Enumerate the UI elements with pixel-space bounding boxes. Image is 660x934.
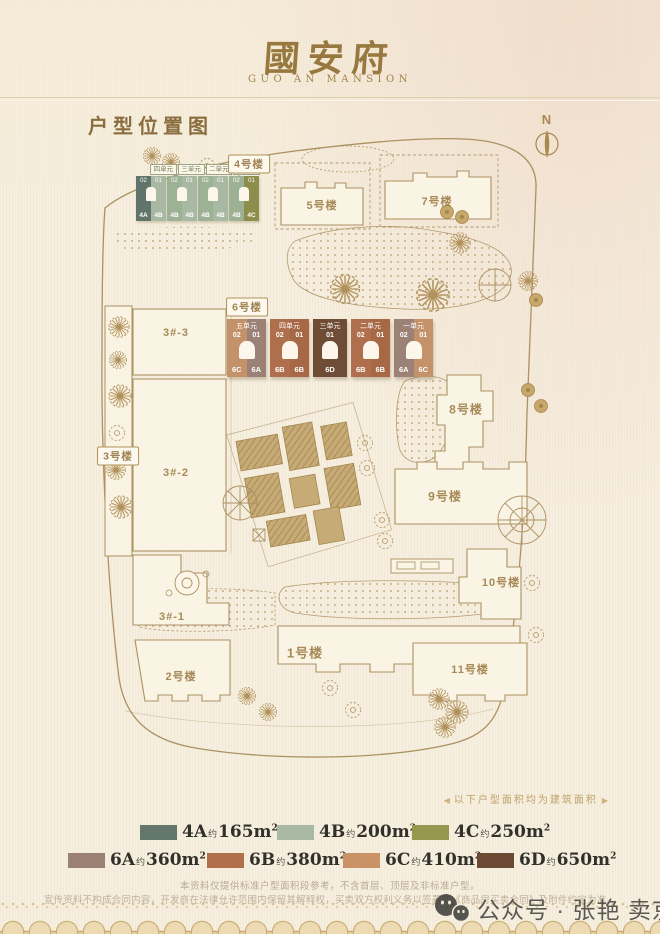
legend-item-6A: 6A约360m2 — [68, 850, 206, 870]
unit-type: 6B — [351, 365, 371, 374]
legend-approx: 约 — [480, 830, 489, 840]
unit-no: 01 — [182, 178, 197, 184]
entrance — [177, 187, 187, 201]
legend-area: 200m — [356, 822, 409, 842]
entrance — [322, 341, 338, 359]
building-4-cells: 02 4A 01 4B 02 4B 01 — [136, 176, 260, 221]
entrance — [208, 187, 218, 201]
legend-code: 6B — [249, 850, 275, 870]
legend-swatch-4B — [277, 825, 314, 840]
legend-code: 6A — [110, 850, 135, 870]
unit-type: 6C — [227, 365, 247, 374]
legend-sup: 2 — [544, 823, 550, 833]
legend-item-6C: 6C约410m2 — [343, 850, 481, 870]
building-label-7: 7号楼 — [421, 193, 452, 209]
unit-type: 4A — [136, 212, 151, 219]
wechat-icon — [433, 892, 471, 924]
legend-swatch-6D — [477, 853, 514, 868]
building-6-units-block: 五单元 02 6C 01 6A 四单元 02 6B 01 — [227, 319, 433, 377]
disclaimer-line-1: 本资料仅提供标准户型面积段参考，不含首层、顶层及非标准户型。 — [0, 878, 660, 892]
legend-approx: 约 — [136, 858, 145, 868]
building-label-8: 8号楼 — [449, 401, 483, 418]
watermark-text: 公众号 · 张艳 卖京房 — [477, 891, 660, 925]
unit-no: 01 — [414, 332, 434, 339]
unit-type: 6D — [313, 365, 347, 374]
unit-no: 02 — [227, 332, 247, 339]
unit-type: 6B — [270, 365, 290, 374]
unit-type: 4B — [198, 212, 213, 219]
unit-no: 01 — [247, 332, 267, 339]
legend-area: 410m — [421, 850, 474, 870]
entrance — [282, 341, 298, 359]
unit-no: 01 — [213, 178, 228, 184]
building-label-10: 10号楼 — [482, 574, 520, 590]
legend-item-6B: 6B约380m2 — [207, 850, 346, 870]
building-label-6: 6号楼 — [226, 298, 268, 317]
unit-no: 02 — [351, 332, 371, 339]
legend-swatch-4A — [140, 825, 177, 840]
legend-item-4A: 4A约165m2 — [140, 822, 278, 842]
unit-type: 6B — [371, 365, 391, 374]
building-label-2: 2号楼 — [165, 668, 196, 684]
unit-block: 三单元 01 6D — [313, 319, 347, 377]
unit-name: 一单元 — [394, 321, 433, 331]
unit-no: 02 — [229, 178, 244, 184]
unit-block: 五单元 02 6C 01 6A — [227, 319, 266, 377]
building-label-3-2: 3#-2 — [163, 467, 189, 479]
unit-type: 4B — [182, 212, 197, 219]
unit-block: 四单元 02 6B 01 6B — [270, 319, 309, 377]
legend-area: 360m — [146, 850, 199, 870]
unit-pair: 02 4B 01 4B — [198, 176, 228, 221]
legend-code: 4A — [182, 822, 207, 842]
unit-pair: 02 4B 01 4B — [167, 176, 197, 221]
building-label-1: 1号楼 — [287, 643, 323, 662]
building-label-9: 9号楼 — [428, 488, 462, 505]
building-label-5: 5号楼 — [306, 197, 337, 213]
entrance — [239, 187, 249, 201]
legend-code: 4B — [319, 822, 345, 842]
building-label-3: 3号楼 — [97, 447, 139, 466]
legend-code: 6C — [385, 850, 410, 870]
legend-swatch-6B — [207, 853, 244, 868]
unit-name: 三单元 — [313, 321, 347, 331]
building-label-11: 11号楼 — [451, 661, 489, 677]
area-note: ◀以下户型面积均为建筑面积▶ — [0, 791, 612, 806]
watermark: 公众号 · 张艳 卖京房 — [433, 891, 660, 925]
unit-block: 二单元 02 6B 01 6B — [351, 319, 390, 377]
unit-type: 4B — [229, 212, 244, 219]
unit-pair: 02 4B 01 4C — [229, 176, 259, 221]
unit-type: 6B — [290, 365, 310, 374]
poster-page: 國安府 GUO AN MANSION 户型位置图 N — [0, 0, 660, 934]
area-note-text: 以下户型面积均为建筑面积 — [454, 795, 598, 806]
unit-type: 4B — [167, 212, 182, 219]
unit-name: 二单元 — [351, 321, 390, 331]
unit-type: 6A — [247, 365, 267, 374]
unit-no: 02 — [270, 332, 290, 339]
unit-no: 01 — [371, 332, 391, 339]
legend-code: 6D — [519, 850, 546, 870]
entrance — [146, 187, 156, 201]
entrance — [406, 341, 422, 359]
unit-tab: 四单元 — [150, 164, 177, 175]
legend-item-6D: 6D约650m2 — [477, 850, 616, 870]
unit-type: 4B — [151, 212, 166, 219]
legend-approx: 约 — [547, 858, 556, 868]
legend-approx: 约 — [346, 830, 355, 840]
unit-block: 一单元 02 6A 01 6C — [394, 319, 433, 377]
legend-area: 380m — [286, 850, 339, 870]
legend-approx: 约 — [276, 858, 285, 868]
unit-tab: 三单元 — [178, 164, 205, 175]
legend-area: 250m — [490, 822, 543, 842]
unit-no: 02 — [394, 332, 414, 339]
unit-name: 五单元 — [227, 321, 266, 331]
unit-type: 4B — [213, 212, 228, 219]
unit-pair: 02 4A 01 4B — [136, 176, 166, 221]
legend-approx: 约 — [208, 830, 217, 840]
unit-type: 6C — [414, 365, 434, 374]
legend-code: 4C — [454, 822, 479, 842]
legend-swatch-6C — [343, 853, 380, 868]
legend-sup: 2 — [610, 851, 616, 861]
unit-type: 6A — [394, 365, 414, 374]
header-divider — [0, 97, 660, 101]
legend-swatch-6A — [68, 853, 105, 868]
unit-no: 02 — [198, 178, 213, 184]
site-plan-map: 四单元 三单元 二单元 一单元 02 4A 01 4B — [95, 113, 555, 791]
unit-name: 四单元 — [270, 321, 309, 331]
legend-approx: 约 — [411, 858, 420, 868]
unit-no: 02 — [136, 178, 151, 184]
unit-type: 4C — [244, 212, 259, 219]
unit-no: 01 — [313, 332, 347, 339]
brand-logo-english: GUO AN MANSION — [0, 74, 660, 85]
legend-sup: 2 — [200, 851, 206, 861]
building-label-3-1: 3#-1 — [159, 611, 185, 623]
legend-item-4C: 4C约250m2 — [412, 822, 550, 842]
legend-swatch-4C — [412, 825, 449, 840]
building-label-4: 4号楼 — [228, 155, 270, 174]
legend-area: 165m — [218, 822, 271, 842]
unit-no: 01 — [244, 178, 259, 184]
building-label-3-3: 3#-3 — [163, 327, 189, 339]
legend-item-4B: 4B约200m2 — [277, 822, 416, 842]
entrance — [363, 341, 379, 359]
unit-no: 01 — [151, 178, 166, 184]
right-arrow-icon: ▶ — [602, 796, 608, 805]
unit-no: 01 — [290, 332, 310, 339]
legend-area: 650m — [557, 850, 610, 870]
left-arrow-icon: ◀ — [444, 796, 450, 805]
unit-no: 02 — [167, 178, 182, 184]
entrance — [239, 341, 255, 359]
